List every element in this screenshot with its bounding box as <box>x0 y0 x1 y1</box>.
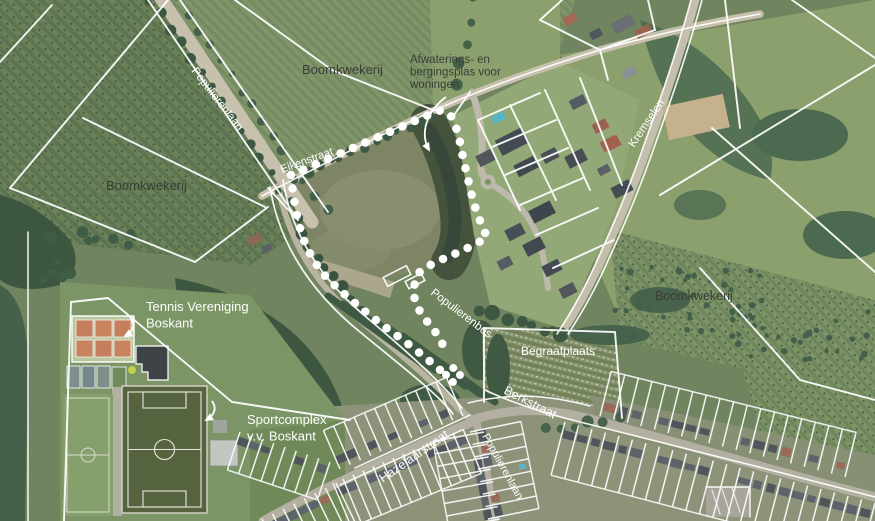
svg-text:Begraafplaats: Begraafplaats <box>521 344 595 358</box>
svg-text:Boomkwekerij: Boomkwekerij <box>655 289 733 303</box>
svg-text:Boomkwekerij: Boomkwekerij <box>106 178 187 193</box>
svg-text:Sportcomplexv.v. Boskant: Sportcomplexv.v. Boskant <box>247 412 327 444</box>
svg-text:Boomkwekerij: Boomkwekerij <box>302 62 383 77</box>
label-begraafplaats: Begraafplaats <box>521 344 595 358</box>
tree-yellow <box>128 366 136 374</box>
sport-building <box>210 440 238 466</box>
label-sportcomplex: Sportcomplexv.v. Boskant <box>247 412 327 444</box>
path-between-fields <box>112 388 122 516</box>
soccer-field-left <box>63 394 113 516</box>
label-boomkwekerij-right: Boomkwekerij <box>655 289 733 303</box>
label-boomkwekerij-left: Boomkwekerij <box>106 178 187 193</box>
label-boomkwekerij-top: Boomkwekerij <box>302 62 383 77</box>
soccer-field-main <box>122 386 207 513</box>
aerial-map: BoomkwekerijAfwaterings- enbergingsplas … <box>0 0 875 521</box>
sport-shed <box>213 420 227 433</box>
aerial-map-canvas: BoomkwekerijAfwaterings- enbergingsplas … <box>0 0 875 521</box>
